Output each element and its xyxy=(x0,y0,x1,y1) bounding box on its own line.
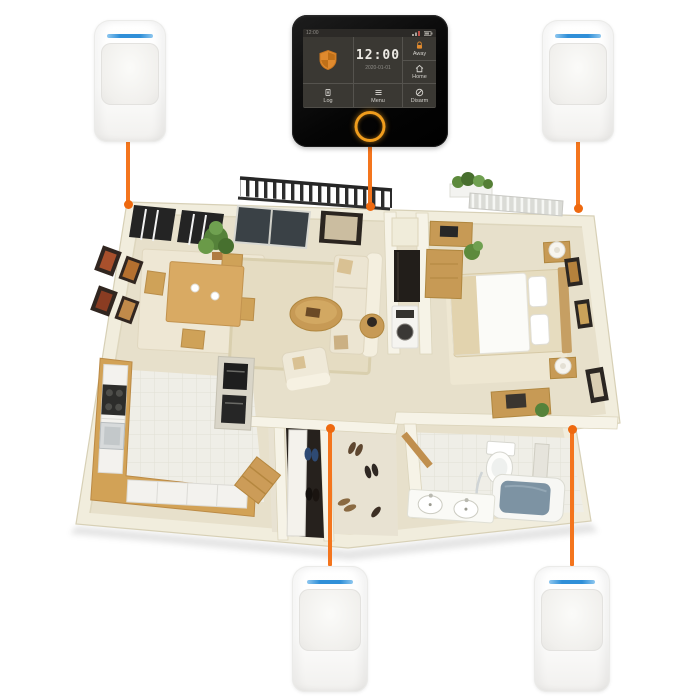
security-shield-icon xyxy=(318,49,338,72)
sensor-lens-window xyxy=(549,43,607,105)
connector-wire-top-right xyxy=(576,141,580,210)
signal-icon xyxy=(412,30,422,36)
towel-shelf xyxy=(533,444,549,479)
alarm-control-panel: 12:00 xyxy=(292,15,448,147)
sensor-lens-window xyxy=(541,589,603,651)
connector-endpoint xyxy=(366,202,375,211)
hallway xyxy=(392,218,420,348)
plant-pot xyxy=(212,252,222,260)
connector-endpoint xyxy=(124,200,133,209)
dining-table xyxy=(166,261,244,326)
pir-motion-sensor-top-right xyxy=(542,20,614,142)
armed-status-tile xyxy=(303,37,353,83)
menu-button[interactable]: Menu xyxy=(354,84,402,107)
panel-statusbar: 12:00 xyxy=(303,29,436,37)
sensor-led-strip xyxy=(107,34,153,38)
connector-endpoint xyxy=(568,425,577,434)
sensor-body xyxy=(94,20,166,142)
sensor-led-strip xyxy=(549,580,595,584)
sensor-led-strip xyxy=(555,34,601,38)
connector-endpoint xyxy=(326,424,335,433)
panel-ring-button[interactable] xyxy=(355,111,386,142)
home-icon xyxy=(415,64,424,73)
bathtub xyxy=(491,474,566,523)
statusbar-time: 12:00 xyxy=(306,29,319,37)
connector-wire-bottom-right xyxy=(570,429,574,566)
away-button[interactable]: Away xyxy=(403,37,436,60)
closet-sliding-door xyxy=(287,430,307,536)
connector-wire-bottom-center xyxy=(328,428,332,566)
sensor-lens-window xyxy=(101,43,159,105)
pir-motion-sensor-bottom-center xyxy=(292,566,368,692)
log-button[interactable]: Log xyxy=(303,84,353,107)
sensor-body xyxy=(542,20,614,142)
sensor-lens-window xyxy=(299,589,361,651)
away-lock-icon xyxy=(415,41,424,50)
panel-menu-grid: 12:00 2020-01-01 Away Home xyxy=(303,37,436,107)
sensor-body xyxy=(534,566,610,692)
clock-tile: 12:00 2020-01-01 xyxy=(354,37,402,83)
connector-wire-panel xyxy=(368,146,372,208)
menu-label: Menu xyxy=(371,98,385,104)
panel-touchscreen: 12:00 xyxy=(303,29,436,108)
statusbar-icons xyxy=(412,30,433,36)
pir-motion-sensor-top-left xyxy=(94,20,166,142)
home-label: Home xyxy=(412,74,427,80)
disarm-label: Disarm xyxy=(411,98,428,104)
connector-endpoint xyxy=(574,204,583,213)
connector-wire-top-left xyxy=(126,140,130,204)
cooktop xyxy=(101,384,127,415)
clock-date: 2020-01-01 xyxy=(365,65,391,71)
sink-counter xyxy=(407,489,495,523)
disarm-icon xyxy=(415,88,424,97)
log-icon xyxy=(324,88,332,97)
battery-icon xyxy=(424,31,433,36)
home-button[interactable]: Home xyxy=(403,61,436,83)
sensor-body xyxy=(292,566,368,692)
away-label: Away xyxy=(413,51,426,57)
clock-time: 12:00 xyxy=(356,49,400,63)
product-diagram: 12:00 xyxy=(0,0,700,700)
bed xyxy=(450,267,572,359)
disarm-button[interactable]: Disarm xyxy=(403,84,436,107)
menu-icon xyxy=(374,88,383,97)
pir-motion-sensor-bottom-right xyxy=(534,566,610,692)
log-label: Log xyxy=(323,98,332,104)
sensor-led-strip xyxy=(307,580,353,584)
armchair xyxy=(281,346,331,391)
